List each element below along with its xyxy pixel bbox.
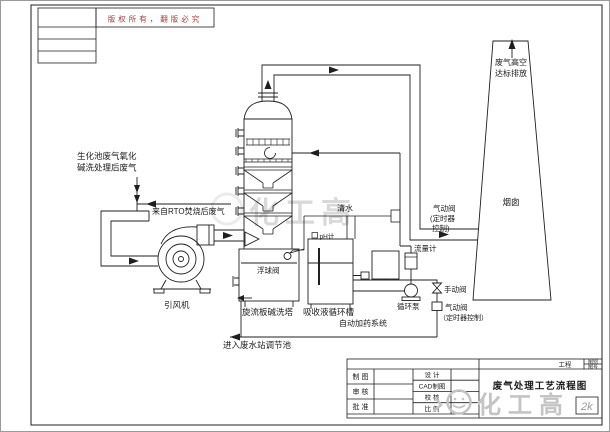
title-sheet-cell-bottom: 图号 [588,365,598,371]
label-inlet-biochem-line2: 碱洗处理后废气 [77,163,137,173]
sump-drain-arrow [237,295,244,301]
watermark-corner-mark: 2k [580,401,593,413]
inlet-flow-arrows [129,185,156,265]
label-tower: 旋流板碱洗塔 [242,307,294,317]
label-inlet-biochem-line1: 生化池废气氧化 [77,151,137,161]
label-pneumatic-valve-lower-1: 气动阀 [445,302,468,312]
title-mid-row-2: CAD制图 [419,382,446,391]
label-pneumatic-valve-upper-3: 控制) [432,223,450,233]
fan-outlet-arrow [223,232,233,239]
label-pneumatic-valve-lower-2: （定时器控制） [439,313,488,322]
label-manual-valve: 手动阀 [444,284,467,294]
copyright-text: 版权所有，翻版必究 [108,14,203,24]
center-watermark: 化工高 [212,194,357,230]
label-stack-out-2: 达标排放 [495,68,527,78]
watermark-logo: 化工高 2k [435,391,593,420]
dosing-system [353,251,399,280]
label-to-wastewater: 进入废水站调节池 [223,340,292,350]
title-left-row-3: 批 准 [353,402,369,411]
label-inlet-rto: 来自RTO焚烧后废气 [152,206,225,216]
circulation-tank [308,233,353,310]
label-fan: 引风机 [164,300,190,310]
label-chimney: 烟囱 [502,197,519,207]
title-project-label: 工程 [559,360,573,369]
label-ph-meter: pH计 [320,232,335,241]
label-stack-out-1: 废气高空 [495,57,527,67]
svg-text:化工高: 化工高 [249,197,357,230]
label-pneumatic-valve-upper-1: 气动阀 [433,203,456,213]
title-left-row-2: 审 核 [353,387,369,396]
chimney [473,41,551,300]
watermark-brand: 化工高 [477,391,570,419]
title-left-row-1: 制 图 [353,372,369,381]
label-circulation-pump: 循环泵 [397,301,420,311]
label-float-valve: 浮球阀 [257,265,280,275]
label-dosing-system: 自动加药系统 [339,318,387,328]
label-circulation-tank: 吸收液循环槽 [303,307,355,317]
chimney-top-arrow [509,39,516,49]
spray-flow-arrow [309,150,319,157]
float-valve [284,249,304,260]
cad-process-flow-drawing: 版权所有，翻版必究 化工高 生化池废气氧化 碱洗处理后废气 来自RTO焚烧后废气 [0,0,610,432]
inlet-piping [101,177,231,266]
label-flow-meter: 流量计 [414,243,437,253]
label-fresh-water: 清水 [337,203,353,213]
drawing-canvas: 版权所有，翻版必究 化工高 生化池废气氧化 碱洗处理后废气 来自RTO焚烧后废气 [1,1,610,432]
title-mid-row-1: 设 计 [425,370,440,379]
drawing-title: 废气处理工艺流程图 [493,380,588,392]
label-pneumatic-valve-upper-2: (定时器 [430,213,455,223]
